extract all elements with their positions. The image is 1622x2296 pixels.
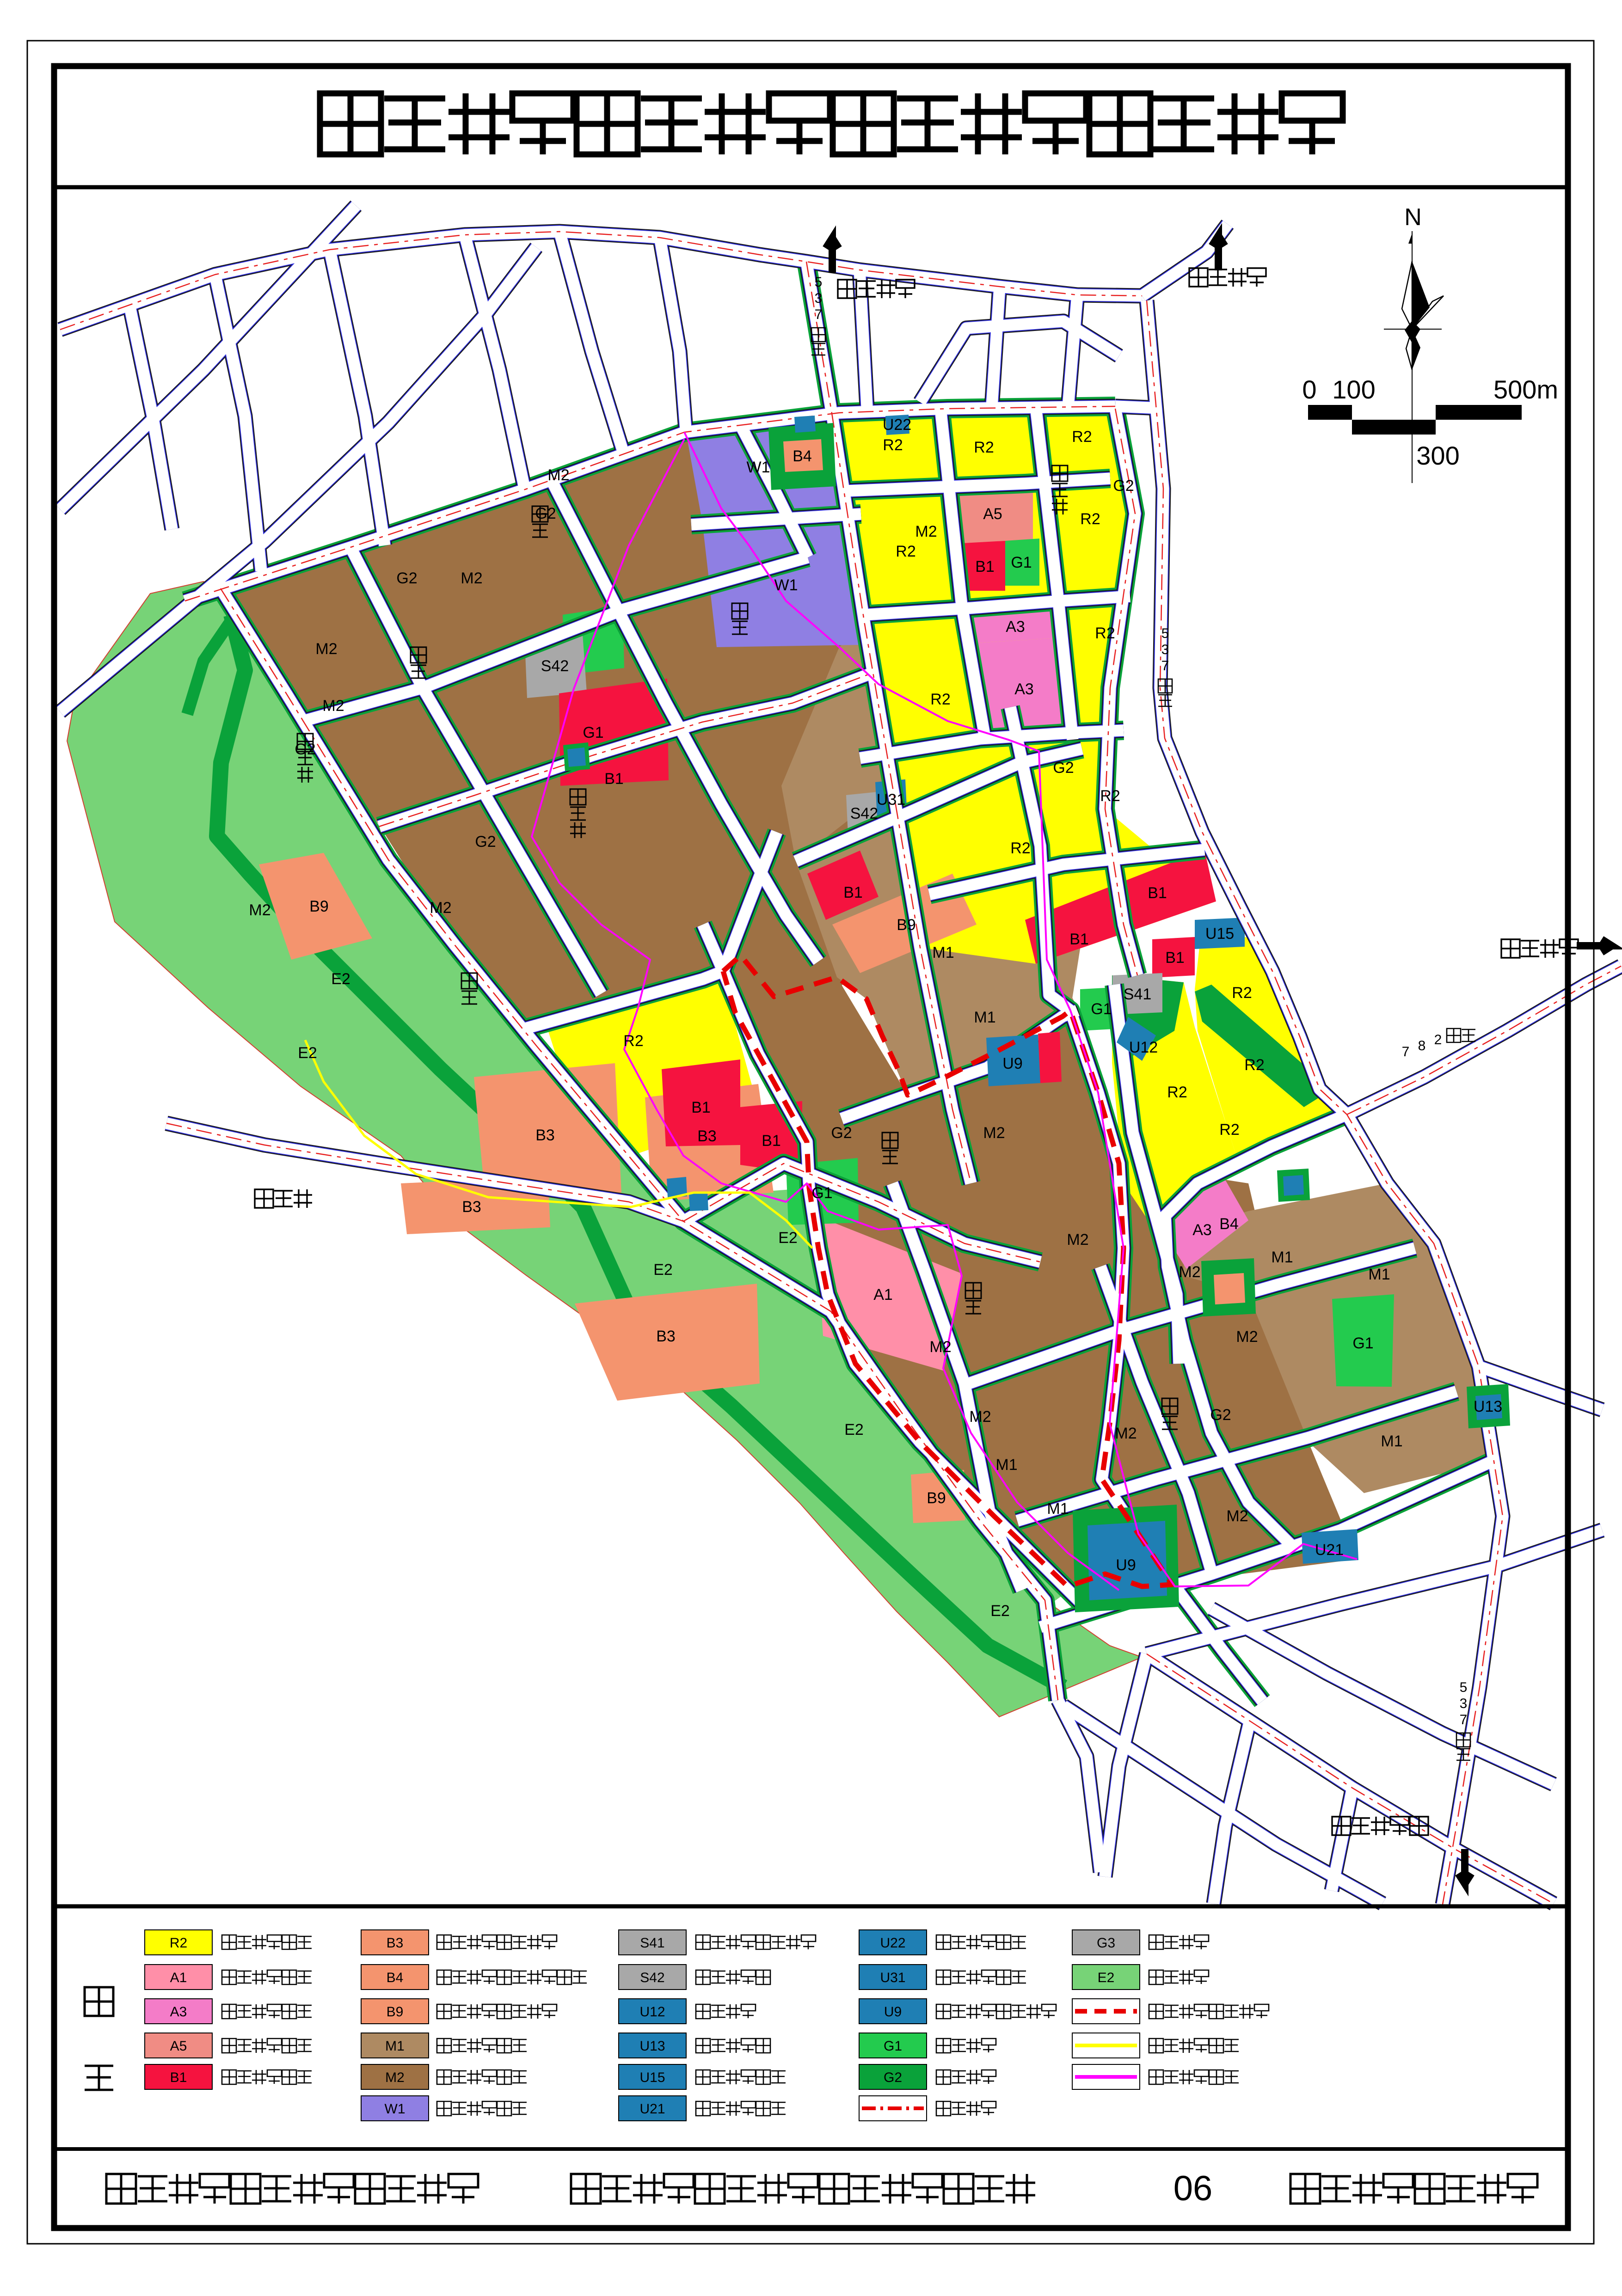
svg-text:E2: E2 [844,1421,864,1439]
svg-text:M1: M1 [995,1456,1017,1474]
svg-text:B1: B1 [1165,949,1185,967]
svg-text:W1: W1 [774,576,798,594]
svg-text:A1: A1 [170,1970,187,1985]
svg-text:B3: B3 [387,1935,404,1951]
svg-text:B3: B3 [656,1328,676,1345]
svg-text:R2: R2 [974,439,994,456]
svg-text:E2: E2 [298,1044,317,1062]
svg-text:G2: G2 [1113,477,1134,495]
svg-text:M2: M2 [249,901,270,919]
svg-text:R2: R2 [1244,1056,1264,1074]
svg-text:B4: B4 [793,447,812,465]
svg-text:A3: A3 [1006,618,1025,636]
svg-text:G1: G1 [1011,554,1032,571]
svg-text:E2: E2 [1098,1970,1115,1985]
svg-text:M2: M2 [1115,1425,1137,1442]
svg-text:3: 3 [815,291,823,306]
svg-text:E2: E2 [653,1261,673,1279]
svg-text:M2: M2 [1236,1328,1258,1346]
svg-text:S41: S41 [1124,986,1152,1003]
svg-text:06: 06 [1173,2169,1213,2208]
svg-text:M1: M1 [385,2039,405,2054]
svg-text:B9: B9 [387,2004,404,2020]
svg-text:G2: G2 [884,2070,902,2085]
svg-text:N: N [1404,204,1422,231]
svg-text:R2: R2 [1080,510,1100,528]
svg-text:R2: R2 [1219,1121,1239,1139]
svg-text:R2: R2 [1232,984,1252,1002]
svg-text:E2: E2 [990,1602,1010,1620]
svg-text:U15: U15 [1205,925,1234,943]
svg-text:R2: R2 [883,436,903,454]
svg-text:U12: U12 [1129,1039,1158,1056]
svg-text:M2: M2 [385,2070,405,2085]
svg-text:S42: S42 [541,657,569,675]
svg-text:B1: B1 [691,1099,711,1116]
svg-text:E2: E2 [778,1229,798,1247]
svg-text:7: 7 [1402,1044,1410,1059]
svg-text:R2: R2 [1100,787,1120,805]
svg-text:A3: A3 [1192,1221,1212,1239]
svg-text:B3: B3 [697,1127,717,1145]
svg-text:M2: M2 [1067,1231,1088,1249]
svg-text:B9: B9 [897,916,916,934]
svg-text:5: 5 [815,275,823,290]
svg-text:A3: A3 [1014,680,1034,698]
svg-text:U31: U31 [880,1970,905,1985]
svg-text:M2: M2 [430,899,451,917]
svg-text:G1: G1 [884,2039,902,2054]
svg-text:U21: U21 [1315,1541,1344,1559]
svg-text:7: 7 [1460,1712,1468,1727]
svg-text:G2: G2 [831,1124,852,1142]
svg-text:100: 100 [1332,375,1375,404]
svg-text:W1: W1 [747,459,770,476]
svg-text:U9: U9 [1116,1556,1136,1574]
svg-text:M2: M2 [969,1408,991,1426]
svg-text:R2: R2 [896,543,915,560]
svg-text:B1: B1 [843,884,863,901]
svg-text:M2: M2 [983,1124,1005,1142]
svg-text:G2: G2 [1053,759,1074,777]
svg-text:M2: M2 [1226,1507,1248,1525]
svg-text:U31: U31 [877,791,905,808]
svg-text:M1: M1 [1047,1500,1069,1518]
svg-text:B9: B9 [927,1489,946,1507]
svg-text:3: 3 [1161,642,1169,657]
svg-text:U22: U22 [883,416,911,434]
svg-text:G1: G1 [811,1184,832,1202]
svg-text:R2: R2 [930,691,950,708]
svg-text:7: 7 [815,307,823,322]
svg-text:B3: B3 [535,1127,555,1144]
svg-text:G1: G1 [583,724,603,741]
svg-text:U21: U21 [639,2101,665,2117]
svg-text:M1: M1 [932,944,954,961]
svg-text:0: 0 [1302,375,1316,404]
svg-text:U12: U12 [639,2004,665,2020]
svg-text:R2: R2 [1095,625,1115,642]
svg-text:B9: B9 [309,898,329,915]
svg-text:8: 8 [1418,1038,1426,1053]
svg-text:M2: M2 [915,523,937,540]
svg-text:U13: U13 [1474,1398,1502,1415]
svg-text:7: 7 [1161,658,1169,673]
svg-text:B1: B1 [975,558,995,576]
svg-text:U15: U15 [639,2070,665,2085]
svg-text:B1: B1 [604,770,624,788]
svg-text:B3: B3 [462,1198,481,1216]
svg-text:M1: M1 [1271,1249,1293,1266]
svg-text:2: 2 [1434,1032,1442,1047]
svg-text:A5: A5 [170,2039,187,2054]
svg-text:G3: G3 [1097,1935,1115,1951]
svg-text:M2: M2 [547,466,569,484]
svg-text:M2: M2 [315,640,337,658]
svg-text:M2: M2 [461,569,482,587]
svg-text:B1: B1 [170,2070,187,2085]
svg-text:S42: S42 [850,805,879,822]
svg-text:G2: G2 [1210,1406,1231,1424]
svg-text:S41: S41 [640,1935,664,1951]
svg-text:G2: G2 [475,833,496,851]
svg-text:U9: U9 [1002,1055,1022,1072]
svg-text:R2: R2 [1167,1084,1187,1101]
svg-text:M1: M1 [974,1009,995,1026]
svg-text:R2: R2 [1072,428,1092,446]
svg-text:U13: U13 [639,2039,665,2054]
svg-text:B4: B4 [387,1970,404,1985]
svg-text:W1: W1 [385,2101,405,2117]
svg-text:G1: G1 [1352,1335,1373,1352]
svg-text:E2: E2 [331,970,350,988]
svg-text:5: 5 [1161,626,1169,641]
svg-text:A5: A5 [983,505,1002,523]
svg-text:U9: U9 [884,2004,902,2020]
svg-text:B1: B1 [1069,931,1089,948]
svg-text:R2: R2 [623,1032,643,1050]
svg-text:G1: G1 [1091,1000,1112,1018]
svg-text:M2: M2 [929,1338,951,1356]
svg-text:500m: 500m [1493,375,1558,404]
svg-text:5: 5 [1460,1680,1468,1695]
svg-text:B1: B1 [762,1132,781,1150]
svg-text:M1: M1 [1368,1266,1390,1283]
svg-text:M1: M1 [1381,1433,1402,1450]
svg-text:A1: A1 [873,1286,893,1304]
svg-text:R2: R2 [1010,839,1030,857]
svg-text:S42: S42 [640,1970,664,1985]
svg-text:R2: R2 [170,1935,187,1951]
svg-text:B1: B1 [1148,884,1167,902]
svg-text:3: 3 [1460,1696,1468,1711]
svg-text:B4: B4 [1219,1215,1239,1233]
svg-text:M2: M2 [322,697,344,715]
svg-text:U22: U22 [880,1935,905,1951]
svg-text:300: 300 [1416,441,1459,470]
svg-text:A3: A3 [170,2004,187,2020]
svg-text:G2: G2 [396,569,417,587]
svg-text:M2: M2 [1179,1263,1200,1281]
